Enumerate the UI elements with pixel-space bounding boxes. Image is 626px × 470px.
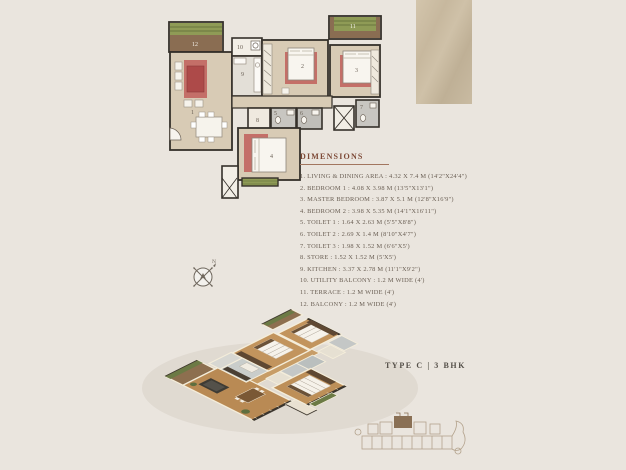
room-label-10: 10	[237, 45, 243, 51]
room-label-8: 8	[256, 118, 259, 124]
room-label-1: 1	[191, 110, 194, 116]
dimensions-panel: DIMENSIONS 1. LIVING & DINING AREA : 4.3…	[300, 152, 490, 310]
room-label-7: 7	[360, 105, 363, 111]
dimensions-list: 1. LIVING & DINING AREA : 4.32 X 7.4 M (…	[300, 171, 490, 310]
room-label-9: 9	[241, 72, 244, 78]
dimension-item: 2. BEDROOM 1 : 4.08 X 3.98 M (13'5"X13'1…	[300, 183, 490, 195]
living-dining-room	[170, 52, 232, 150]
shaft	[334, 106, 354, 130]
dimensions-rule	[300, 164, 389, 165]
unit-type-label: TYPE C | 3 BHK	[385, 361, 466, 370]
room-label-5: 5	[274, 111, 277, 117]
dimension-item: 5. TOILET 1 : 1.64 X 2.63 M (5'5"X8'8")	[300, 217, 490, 229]
room-label-6: 6	[300, 111, 303, 117]
compass-icon: N	[194, 259, 217, 287]
room-label-12: 12	[192, 42, 198, 48]
floor-plan-3d	[142, 309, 418, 434]
dimension-item: 12. BALCONY : 1.2 M WIDE (4')	[300, 299, 490, 311]
room-label-2: 2	[301, 64, 304, 70]
dimension-item: 1. LIVING & DINING AREA : 4.32 X 7.4 M (…	[300, 171, 490, 183]
bedroom-4	[238, 128, 300, 180]
corridor	[232, 96, 332, 108]
dimension-item: 9. KITCHEN : 3.37 X 2.78 M (11'1"X9'2")	[300, 264, 490, 276]
dimension-item: 11. TERRACE : 1.2 M WIDE (4')	[300, 287, 490, 299]
room-label-11: 11	[350, 24, 356, 30]
dimension-item: 10. UTILITY BALCONY : 1.2 M WIDE (4')	[300, 275, 490, 287]
dimension-item: 7. TOILET 3 : 1.98 X 1.52 M (6'6"X5')	[300, 241, 490, 253]
store-8	[248, 108, 270, 130]
highlighted-unit	[394, 416, 412, 428]
dimension-item: 4. BEDROOM 2 : 3.98 X 5.35 M (14'1"X16'1…	[300, 206, 490, 218]
compass-north-label: N	[212, 259, 216, 265]
dimension-item: 6. TOILET 2 : 2.69 X 1.4 M (8'10"X4'7")	[300, 229, 490, 241]
dimension-item: 3. MASTER BEDROOM : 3.87 X 5.1 M (12'8"X…	[300, 194, 490, 206]
kitchen-9	[232, 56, 262, 96]
room-label-4: 4	[270, 154, 273, 160]
balcony-shaft	[222, 166, 238, 198]
planter-strip	[242, 178, 278, 186]
bedroom-2	[262, 40, 328, 98]
brochure-page: 1 2 3 4 5 6 7 8 9 10 11 12 N	[0, 0, 626, 470]
room-label-3: 3	[355, 68, 358, 74]
dimensions-title: DIMENSIONS	[300, 152, 490, 161]
dimension-item: 8. STORE : 1.52 X 1.52 M (5'X5')	[300, 252, 490, 264]
